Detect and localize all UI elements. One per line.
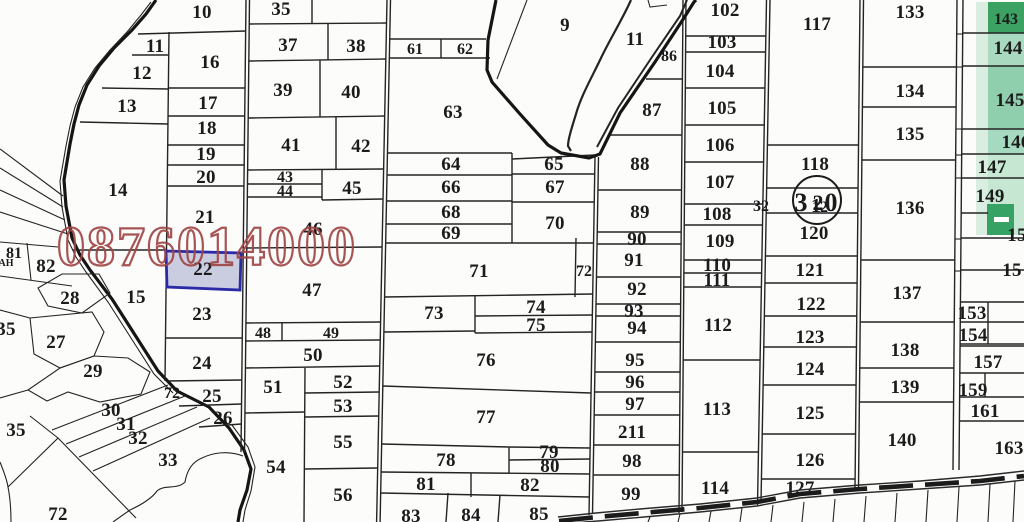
svg-text:95: 95: [625, 350, 644, 371]
svg-text:145: 145: [995, 90, 1024, 111]
svg-text:14: 14: [108, 180, 128, 201]
svg-text:122: 122: [796, 294, 825, 315]
svg-text:45: 45: [342, 178, 361, 199]
svg-text:0876014000: 0876014000: [57, 216, 357, 278]
svg-text:135: 135: [895, 124, 924, 145]
svg-text:121: 121: [795, 260, 824, 281]
svg-text:67: 67: [545, 177, 565, 198]
svg-text:125: 125: [795, 403, 824, 424]
svg-text:87: 87: [642, 100, 662, 121]
svg-text:126: 126: [795, 450, 824, 471]
svg-text:20: 20: [196, 167, 215, 188]
svg-text:11: 11: [146, 36, 164, 57]
svg-text:86: 86: [661, 48, 677, 65]
svg-text:89: 89: [630, 202, 649, 223]
svg-text:15: 15: [1002, 260, 1021, 281]
svg-text:154: 154: [958, 325, 987, 346]
svg-text:83: 83: [401, 506, 420, 522]
svg-text:15: 15: [1007, 225, 1024, 246]
svg-text:12: 12: [132, 63, 151, 84]
svg-text:56: 56: [333, 485, 352, 506]
svg-text:211: 211: [618, 422, 646, 443]
svg-text:18: 18: [197, 118, 216, 139]
svg-text:АН: АН: [0, 258, 14, 269]
svg-text:144: 144: [993, 38, 1022, 59]
svg-text:70: 70: [545, 213, 564, 234]
svg-text:161: 161: [970, 401, 999, 422]
svg-text:32: 32: [753, 198, 769, 215]
svg-text:84: 84: [461, 505, 481, 522]
svg-text:35: 35: [271, 0, 290, 20]
svg-text:133: 133: [895, 2, 924, 23]
svg-text:105: 105: [707, 98, 736, 119]
svg-text:73: 73: [424, 303, 443, 324]
svg-text:134: 134: [895, 81, 924, 102]
svg-text:91: 91: [624, 250, 643, 271]
svg-text:69: 69: [441, 223, 460, 244]
svg-text:72: 72: [48, 504, 67, 522]
svg-text:76: 76: [476, 350, 495, 371]
svg-text:113: 113: [703, 399, 731, 420]
svg-text:118: 118: [801, 154, 829, 175]
svg-text:64: 64: [441, 154, 461, 175]
svg-text:80: 80: [540, 456, 559, 477]
svg-text:136: 136: [895, 198, 924, 219]
svg-text:112: 112: [704, 315, 732, 336]
svg-text:109: 109: [705, 231, 734, 252]
svg-text:50: 50: [303, 345, 322, 366]
svg-text:99: 99: [621, 484, 640, 505]
svg-text:26: 26: [213, 408, 232, 429]
svg-text:19: 19: [196, 144, 215, 165]
svg-text:143: 143: [994, 11, 1018, 28]
svg-text:41: 41: [281, 135, 300, 156]
svg-text:147: 147: [977, 157, 1006, 178]
svg-text:111: 111: [703, 270, 730, 291]
svg-text:90: 90: [627, 229, 646, 250]
svg-text:88: 88: [630, 154, 649, 175]
svg-text:35: 35: [6, 420, 25, 441]
svg-text:102: 102: [710, 0, 739, 21]
svg-text:92: 92: [627, 279, 646, 300]
svg-text:11: 11: [626, 29, 644, 50]
svg-text:29: 29: [83, 361, 102, 382]
svg-text:114: 114: [701, 478, 729, 499]
svg-text:68: 68: [441, 202, 460, 223]
svg-text:85: 85: [529, 504, 548, 522]
svg-text:62: 62: [457, 41, 473, 58]
svg-text:72: 72: [576, 263, 592, 280]
svg-text:163: 163: [994, 438, 1023, 459]
svg-text:117: 117: [803, 14, 831, 35]
svg-text:138: 138: [890, 340, 919, 361]
svg-text:65: 65: [544, 154, 563, 175]
svg-text:124: 124: [795, 359, 824, 380]
svg-text:98: 98: [622, 451, 641, 472]
svg-text:2: 2: [813, 190, 824, 215]
svg-text:107: 107: [705, 172, 734, 193]
svg-text:149: 149: [975, 186, 1004, 207]
svg-text:53: 53: [333, 396, 352, 417]
svg-text:63: 63: [443, 102, 462, 123]
svg-text:75: 75: [526, 315, 545, 336]
svg-text:159: 159: [958, 380, 987, 401]
svg-text:0: 0: [825, 188, 838, 217]
svg-text:39: 39: [273, 80, 292, 101]
svg-text:96: 96: [625, 372, 644, 393]
svg-text:97: 97: [625, 394, 645, 415]
svg-text:94: 94: [627, 318, 647, 339]
svg-text:61: 61: [407, 41, 423, 58]
svg-text:44: 44: [277, 183, 293, 200]
svg-text:77: 77: [476, 407, 496, 428]
svg-text:33: 33: [158, 450, 177, 471]
svg-text:82: 82: [520, 475, 539, 496]
svg-text:47: 47: [302, 280, 322, 301]
svg-text:139: 139: [890, 377, 919, 398]
svg-text:104: 104: [705, 61, 734, 82]
svg-text:108: 108: [702, 204, 731, 225]
svg-text:38: 38: [346, 36, 365, 57]
svg-text:37: 37: [278, 35, 298, 56]
svg-text:153: 153: [957, 303, 986, 324]
svg-text:3: 3: [795, 188, 808, 217]
svg-text:24: 24: [192, 353, 212, 374]
svg-text:146: 146: [1001, 132, 1024, 153]
svg-text:72: 72: [164, 385, 180, 402]
svg-text:48: 48: [255, 325, 271, 342]
svg-text:52: 52: [333, 372, 352, 393]
svg-text:32: 32: [128, 428, 147, 449]
svg-text:25: 25: [202, 386, 221, 407]
svg-text:106: 106: [705, 135, 734, 156]
svg-text:71: 71: [469, 261, 488, 282]
svg-text:55: 55: [333, 432, 352, 453]
svg-text:10: 10: [192, 2, 211, 23]
svg-text:78: 78: [436, 450, 455, 471]
svg-text:13: 13: [117, 96, 136, 117]
svg-text:28: 28: [60, 288, 79, 309]
svg-text:27: 27: [46, 332, 66, 353]
svg-text:49: 49: [323, 325, 339, 342]
svg-text:66: 66: [441, 177, 460, 198]
svg-text:82: 82: [36, 256, 55, 277]
svg-text:140: 140: [887, 430, 916, 451]
svg-text:157: 157: [973, 352, 1002, 373]
svg-text:35: 35: [0, 319, 16, 340]
svg-text:54: 54: [266, 457, 286, 478]
svg-text:103: 103: [707, 32, 736, 53]
svg-text:123: 123: [795, 327, 824, 348]
svg-text:51: 51: [263, 377, 282, 398]
svg-text:40: 40: [341, 82, 360, 103]
svg-text:120: 120: [799, 223, 828, 244]
svg-text:23: 23: [192, 304, 211, 325]
svg-text:137: 137: [892, 283, 921, 304]
svg-text:9: 9: [560, 15, 570, 36]
svg-text:15: 15: [126, 287, 145, 308]
svg-text:16: 16: [200, 52, 219, 73]
svg-text:17: 17: [198, 93, 218, 114]
svg-text:42: 42: [351, 136, 370, 157]
svg-text:81: 81: [416, 474, 435, 495]
